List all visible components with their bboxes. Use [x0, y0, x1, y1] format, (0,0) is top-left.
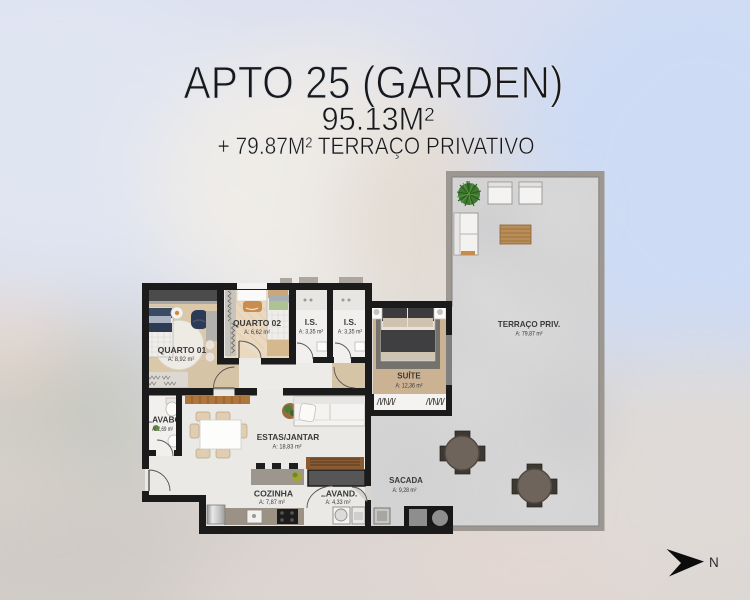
- svg-text:A: 2,69 m²: A: 2,69 m²: [152, 426, 173, 433]
- svg-text:A: 4,33 m²: A: 4,33 m²: [326, 499, 351, 506]
- svg-text:I.S.: I.S.: [344, 317, 357, 327]
- svg-text:A: 9,28 m²: A: 9,28 m²: [393, 487, 417, 494]
- svg-text:A: 3,35 m²: A: 3,35 m²: [299, 329, 323, 336]
- svg-text:N: N: [709, 555, 719, 570]
- svg-text:QUARTO 01: QUARTO 01: [158, 345, 207, 355]
- svg-text:+ 79.87M² TERRAÇO PRIVATIVO: + 79.87M² TERRAÇO PRIVATIVO: [218, 133, 535, 160]
- svg-text:COZINHA: COZINHA: [254, 489, 293, 499]
- svg-text:A: 3,35 m²: A: 3,35 m²: [338, 329, 362, 336]
- svg-text:A: 6,62 m²: A: 6,62 m²: [244, 329, 270, 336]
- svg-text:95.13M²: 95.13M²: [322, 101, 435, 137]
- svg-text:ESTAS/JANTAR: ESTAS/JANTAR: [257, 432, 320, 442]
- svg-text:I.S.: I.S.: [305, 317, 318, 327]
- svg-text:A: 79,87 m²: A: 79,87 m²: [516, 331, 543, 338]
- svg-text:TERRAÇO PRIV.: TERRAÇO PRIV.: [498, 319, 560, 329]
- svg-text:A: 7,87 m²: A: 7,87 m²: [259, 499, 285, 506]
- svg-text:A: 8,92 m²: A: 8,92 m²: [168, 356, 195, 363]
- svg-text:SACADA: SACADA: [389, 475, 423, 485]
- svg-text:A: 12,36 m²: A: 12,36 m²: [396, 383, 423, 390]
- svg-text:QUARTO 02: QUARTO 02: [233, 318, 281, 328]
- svg-text:SUÍTE: SUÍTE: [397, 370, 421, 381]
- svg-text:A: 18,83 m²: A: 18,83 m²: [273, 444, 302, 451]
